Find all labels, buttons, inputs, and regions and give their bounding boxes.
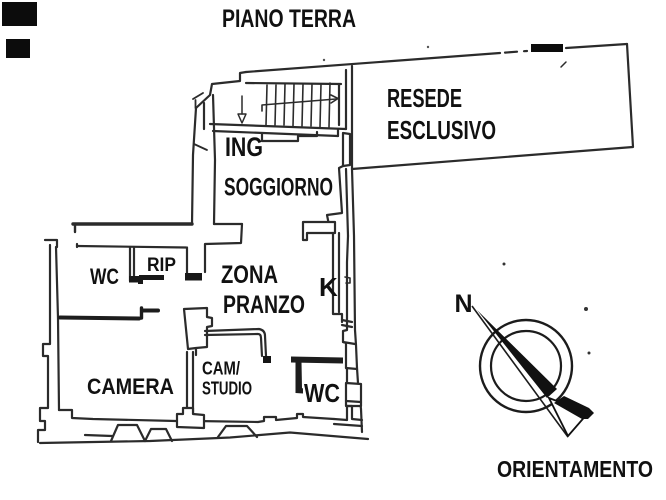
svg-text:ZONA: ZONA [221, 261, 278, 289]
svg-text:SOGGIORNO: SOGGIORNO [224, 174, 333, 202]
svg-text:ORIENTAMENTO: ORIENTAMENTO [497, 456, 653, 482]
svg-text:N: N [455, 290, 473, 318]
svg-text:RESEDE: RESEDE [387, 85, 462, 113]
svg-text:STUDIO: STUDIO [202, 379, 252, 399]
svg-text:CAM/: CAM/ [202, 359, 240, 379]
svg-text:ESCLUSIVO: ESCLUSIVO [387, 117, 496, 145]
svg-text:ING: ING [225, 132, 263, 162]
svg-text:RIP: RIP [147, 255, 176, 276]
svg-text:CAMERA: CAMERA [87, 374, 174, 399]
svg-text:PIANO TERRA: PIANO TERRA [222, 5, 356, 33]
svg-text:PRANZO: PRANZO [223, 291, 305, 319]
svg-text:WC: WC [90, 264, 119, 289]
svg-text:WC: WC [304, 378, 340, 408]
svg-text:K: K [319, 272, 338, 302]
